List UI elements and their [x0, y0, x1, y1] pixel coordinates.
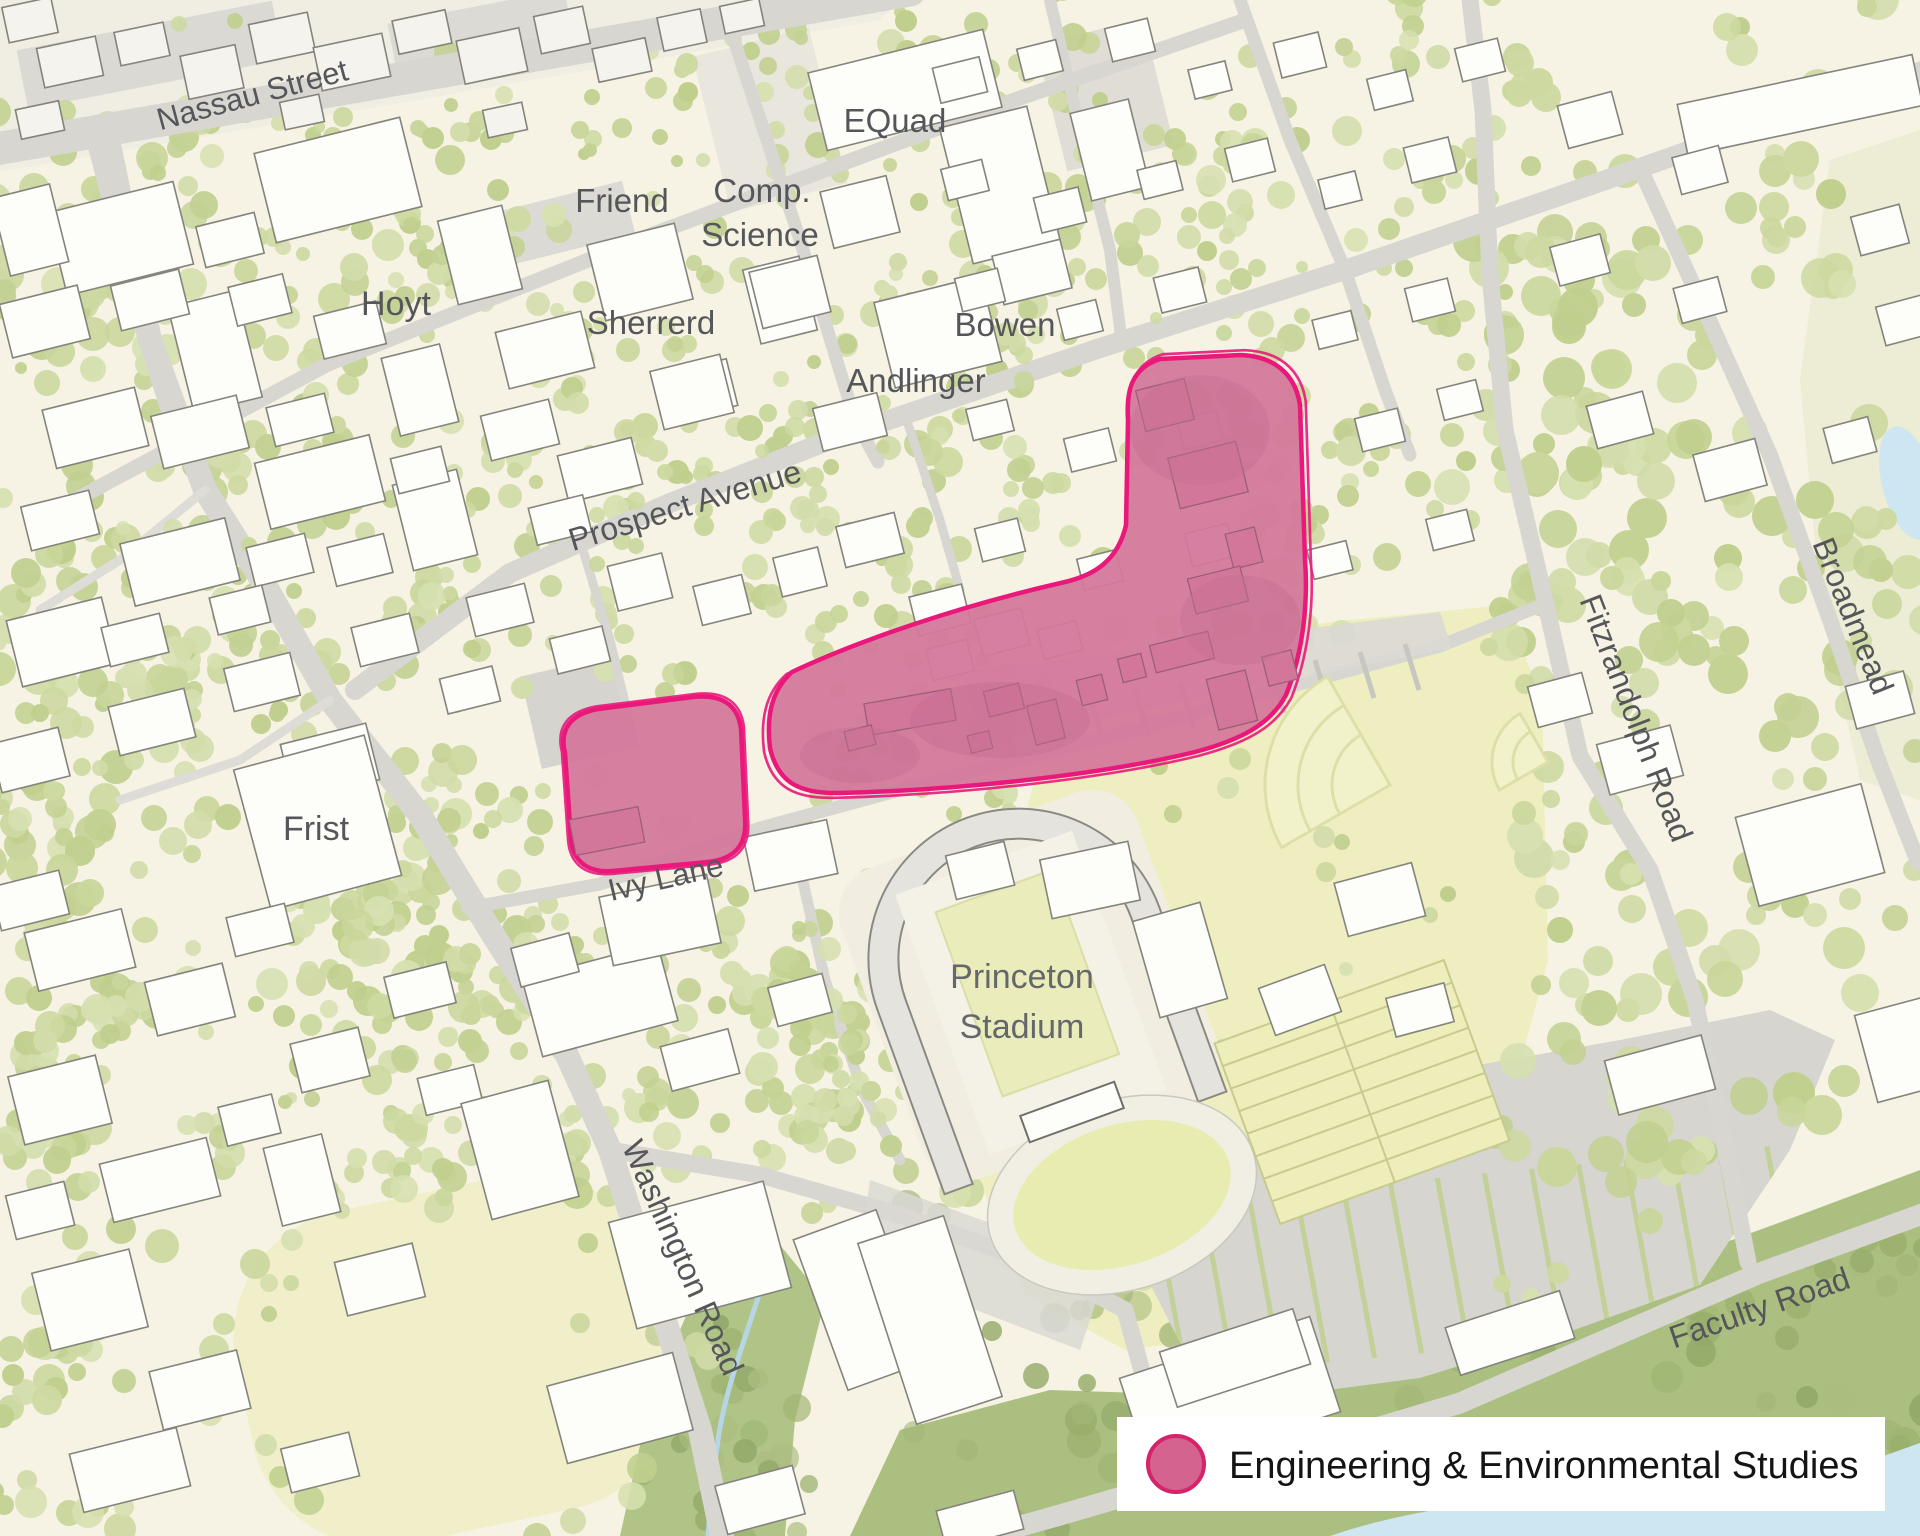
svg-text:Sherrerd: Sherrerd: [587, 304, 715, 341]
svg-text:Comp.: Comp.: [713, 172, 810, 209]
svg-text:Andlinger: Andlinger: [846, 362, 985, 399]
svg-text:EQuad: EQuad: [844, 102, 947, 139]
svg-text:Friend: Friend: [575, 182, 669, 219]
svg-text:Frist: Frist: [283, 810, 350, 848]
svg-text:Engineering & Environmental St: Engineering & Environmental Studies: [1229, 1445, 1859, 1487]
svg-text:Stadium: Stadium: [960, 1008, 1085, 1046]
svg-text:Hoyt: Hoyt: [361, 285, 431, 323]
svg-text:Science: Science: [701, 216, 818, 253]
svg-text:Princeton: Princeton: [950, 958, 1094, 996]
svg-text:Bowen: Bowen: [955, 306, 1056, 343]
